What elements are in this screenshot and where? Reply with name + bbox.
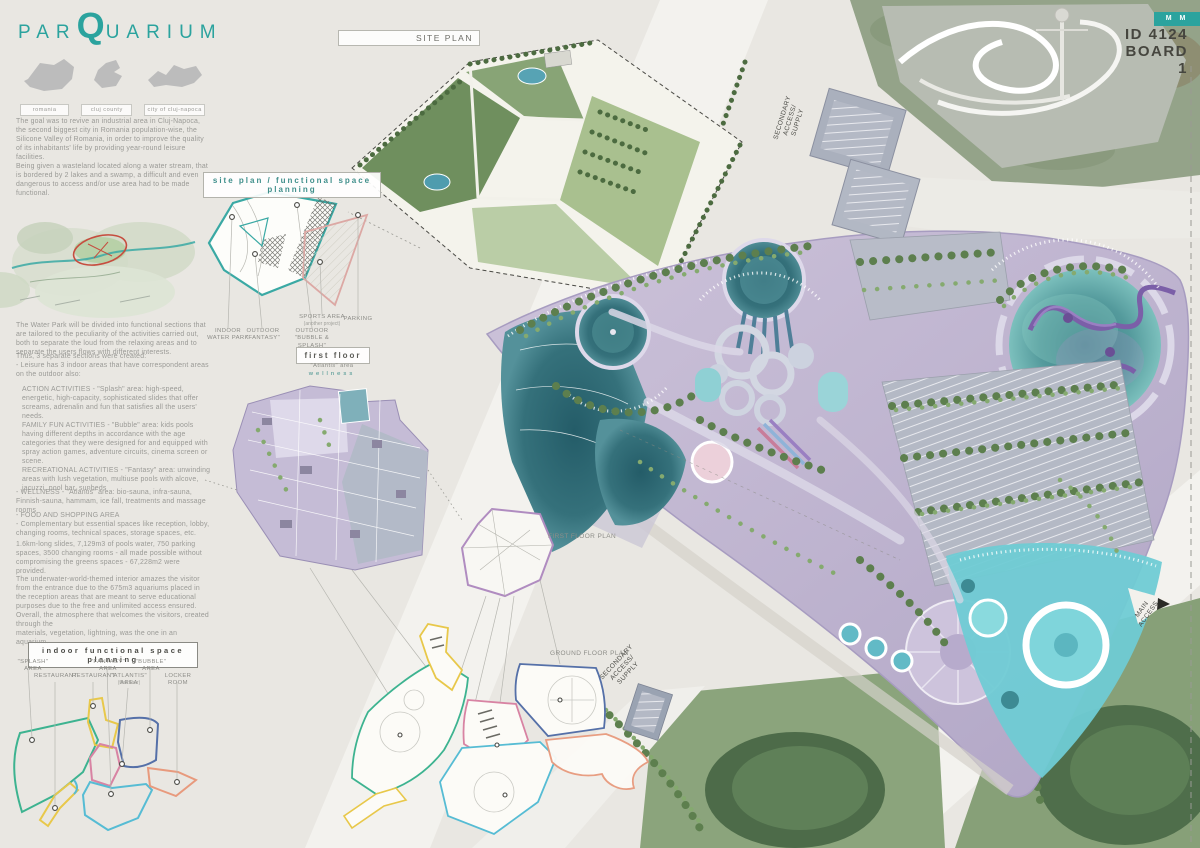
first-floor-sub: "Atlantis" area bbox=[300, 363, 364, 370]
brand-chip: M M bbox=[1154, 12, 1200, 26]
interior-paragraph: The underwater-world-themed interior ama… bbox=[16, 576, 210, 648]
legend-atlantis-sub: (first floor) bbox=[104, 680, 154, 686]
site-plan-title: SITE PLAN bbox=[338, 30, 480, 46]
label-first-floor-plan: FIRST FLOOR PLAN bbox=[548, 533, 618, 541]
intro-paragraph: The goal was to revive an industrial are… bbox=[16, 118, 210, 199]
logo-text-rest: uarium bbox=[106, 22, 223, 44]
legend-splash-area: "SPLASH" AREA bbox=[10, 659, 56, 674]
legend-bubble-area: "BUBBLE" AREA bbox=[128, 659, 174, 674]
legend-fantasy-area: "FANTASY" AREA bbox=[84, 659, 132, 674]
stats-paragraph: 1.6km-long slides, 7,129m3 of pools wate… bbox=[16, 541, 210, 577]
first-floor-sub2: wellness bbox=[300, 371, 364, 378]
map-label-romania: romania bbox=[20, 104, 69, 116]
cluj-county-map bbox=[94, 60, 122, 88]
board-number: BOARD 1 bbox=[1118, 43, 1188, 77]
legend-locker-room: LOCKER ROOM bbox=[154, 673, 202, 688]
logo: par Q uarium bbox=[18, 12, 223, 44]
location-maps: romania cluj county city of cluj-napoca bbox=[20, 55, 205, 116]
board-id: ID 4124 bbox=[1118, 26, 1188, 43]
label-outdoor-bubble-splash: OUTDOOR "BUBBLE & SPLASH" bbox=[284, 328, 340, 350]
label-parking: PARKING bbox=[338, 316, 378, 323]
functional-planning-title: site plan / functional space planning bbox=[203, 172, 381, 198]
sections-paragraph: Thus, 3 separate sections were created: … bbox=[16, 353, 210, 380]
logo-text-pre: par bbox=[18, 22, 77, 44]
food-paragraph: - FOOD AND SHOPPING AREA - Complementary… bbox=[16, 512, 210, 539]
map-label-cluj-county: cluj county bbox=[81, 104, 132, 116]
map-silhouettes bbox=[20, 55, 205, 97]
presentation-board: par Q uarium romania cluj county city of… bbox=[0, 0, 1200, 848]
map-label-cluj-napoca: city of cluj-napoca bbox=[144, 104, 205, 116]
logo-q: Q bbox=[77, 12, 106, 41]
cluj-napoca-map bbox=[148, 65, 202, 87]
legend-restaurant-1: RESTAURANT bbox=[34, 673, 76, 680]
label-outdoor-fantasy: OUTDOOR "FANTASY" bbox=[242, 328, 284, 343]
activities-paragraph: ACTION ACTIVITIES - "Splash" area: high-… bbox=[22, 386, 212, 494]
romania-map bbox=[24, 59, 74, 91]
